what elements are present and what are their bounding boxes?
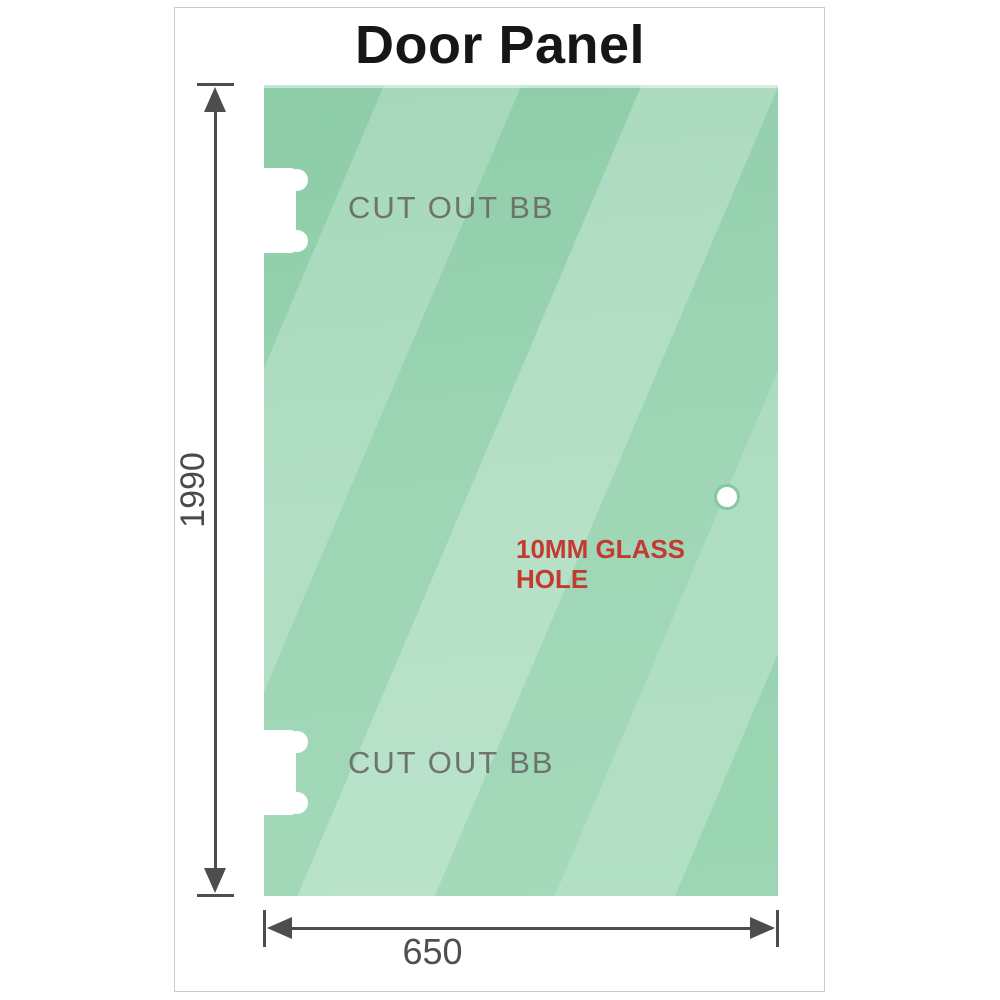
page-title: Door Panel	[174, 10, 826, 80]
height-dimension-top-tick	[197, 83, 234, 86]
arrow-right-icon	[750, 917, 775, 939]
glass-hole-label: 10MM GLASS HOLE	[516, 534, 716, 564]
cutout-bb-top-bump-icon	[286, 169, 308, 191]
height-dimension-bottom-tick	[197, 894, 234, 897]
cutout-bb-bottom-bump-icon	[286, 792, 308, 814]
width-dimension-line	[272, 927, 772, 930]
width-dimension-left-tick	[263, 910, 266, 947]
glass-hole-icon	[714, 484, 740, 510]
cutout-bb-bottom-bump-icon	[286, 731, 308, 753]
cutout-bb-top-bump-icon	[286, 230, 308, 252]
cutout-bb-bottom-label: CUT OUT BB	[348, 743, 608, 783]
height-dimension-line	[214, 98, 217, 882]
width-dimension-right-tick	[776, 910, 779, 947]
arrow-down-icon	[204, 868, 226, 893]
width-dimension-label: 650	[385, 931, 480, 973]
cutout-bb-top-label: CUT OUT BB	[348, 188, 608, 228]
height-dimension-label: 1990	[173, 420, 213, 560]
